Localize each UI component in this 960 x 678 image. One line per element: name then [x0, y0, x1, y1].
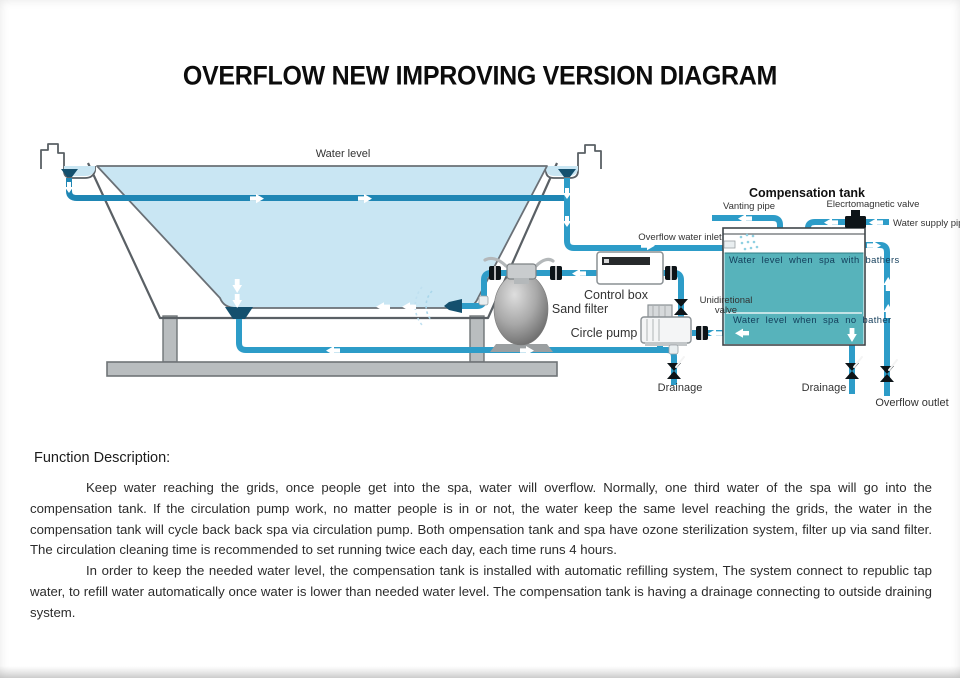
label-sand-filter: Sand filter — [552, 302, 608, 316]
page-title: OVERFLOW NEW IMPROVING VERSION DIAGRAM — [0, 61, 960, 92]
label-circle-pump: Circle pump — [571, 326, 638, 340]
control-box — [597, 252, 663, 284]
label-control-box: Control box — [584, 288, 649, 302]
label-overflow-outlet: Overflow outlet — [875, 397, 948, 409]
description-paragraph-2: In order to keep the needed water level,… — [30, 561, 932, 623]
diagram-canvas: Water level Compensation tank Vanting pi… — [0, 130, 960, 422]
spa-water — [97, 166, 547, 308]
control-box-display — [602, 257, 650, 265]
page: OVERFLOW NEW IMPROVING VERSION DIAGRAM — [0, 0, 960, 678]
label-water-level-no-bather: Water level when spa no bather — [733, 314, 892, 325]
compensation-tank — [723, 228, 865, 345]
label-drainage-right: Drainage — [802, 382, 847, 394]
label-water-level-with-bathers: Water level when spa with bathers — [729, 254, 900, 265]
label-compensation-tank: Compensation tank — [749, 186, 865, 200]
label-water-supply-pipe: Water supply pipe — [893, 218, 960, 229]
label-water-level: Water level — [316, 148, 371, 160]
label-electromagnetic-valve: Elecrtomagnetic valve — [827, 199, 920, 210]
unidirectional-valve — [674, 299, 688, 315]
support-structure — [107, 316, 557, 376]
electromagnetic-valve — [845, 210, 866, 228]
label-drainage-left: Drainage — [658, 382, 703, 394]
label-overflow-water-inlet: Overflow water inlet — [638, 232, 722, 243]
description-paragraph-1: Keep water reaching the grids, once peop… — [30, 478, 932, 561]
label-vanting-pipe: Vanting pipe — [723, 201, 775, 212]
function-description-heading: Function Description: — [34, 450, 932, 466]
function-description: Function Description: Keep water reachin… — [30, 450, 932, 624]
